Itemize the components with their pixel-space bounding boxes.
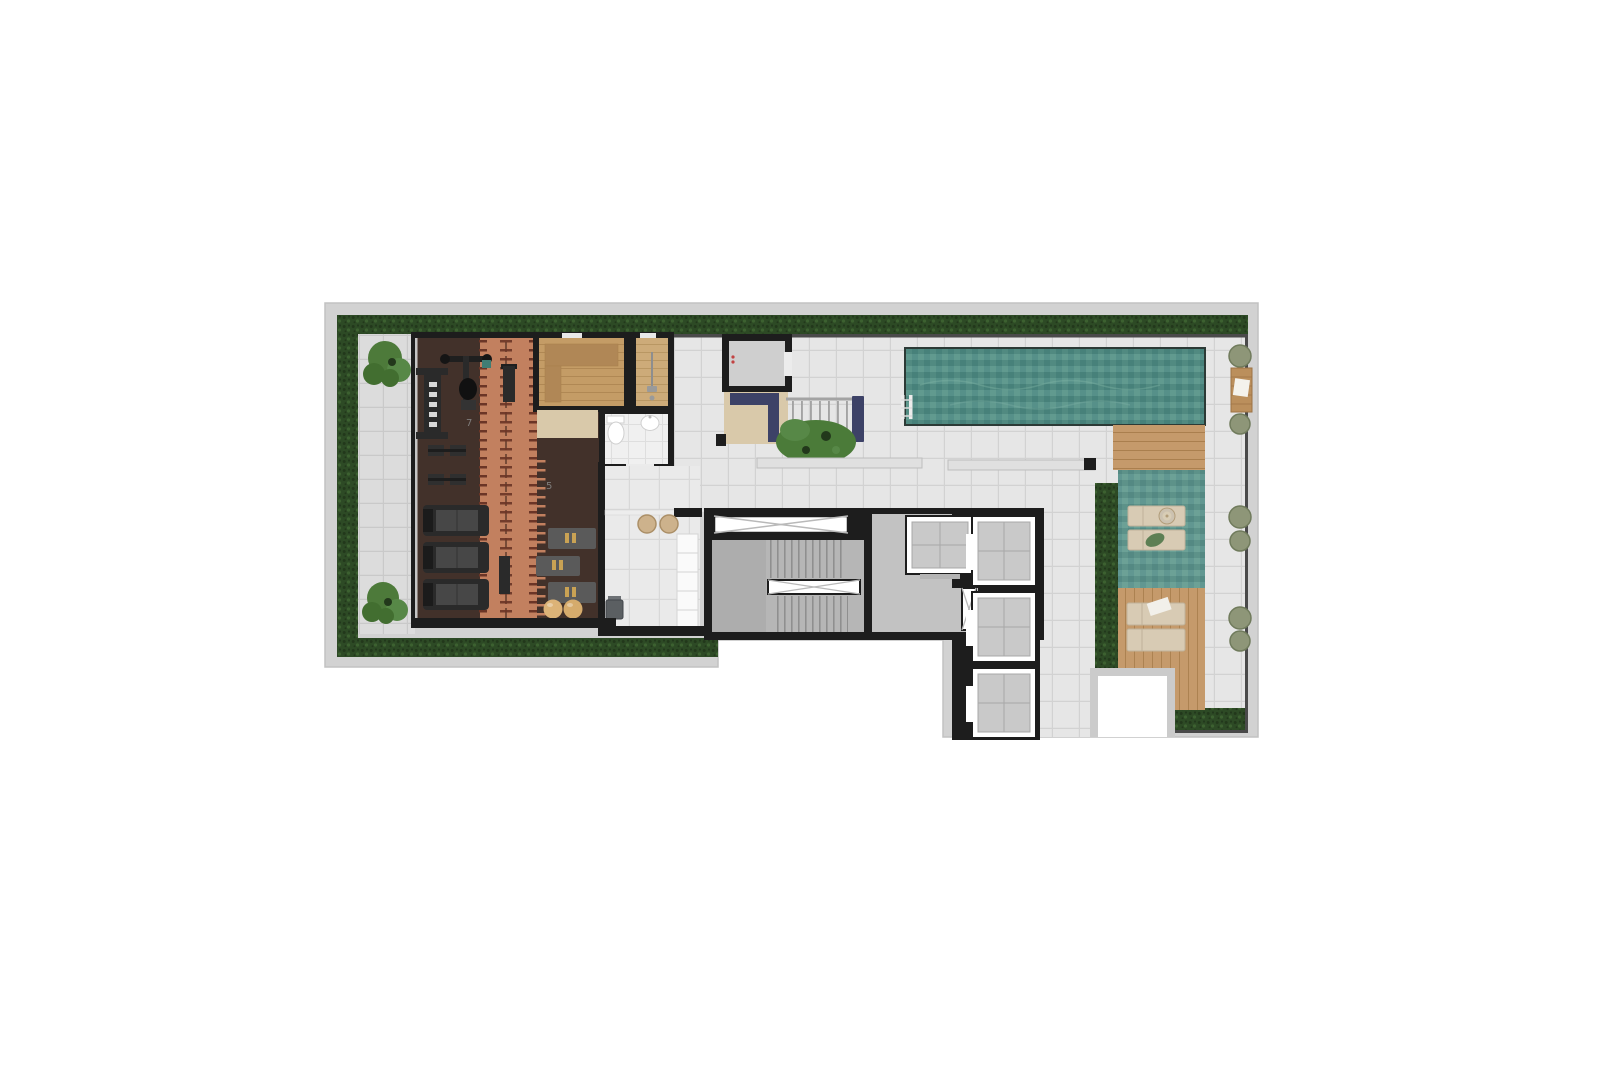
gym-south-wall [411,618,616,628]
bin [606,600,623,619]
elevator-door [966,686,973,722]
low-ledge [948,460,1095,470]
sink-icon [641,416,659,431]
sauna-bench [545,344,618,366]
shower-control [731,355,734,358]
hedge-left [337,315,358,657]
toilet-icon [607,416,624,444]
pantry-west-wall [598,462,605,628]
deck-loungers [1127,597,1185,651]
wall-column [1084,458,1096,470]
round-planter [1229,345,1251,367]
stool [660,515,678,533]
exercise-mat [536,556,580,576]
track-marker-7: 7 [466,418,472,429]
pantry-south-wall [598,626,712,636]
elevator-door [920,574,960,579]
shower-room-door [784,352,792,376]
hedge-bottom-right [1170,708,1248,732]
track-marker-5: 5 [546,481,552,492]
cable-post [499,556,510,594]
shaft-hatch [714,516,848,533]
treadmills [423,505,489,610]
shower-room-floor [729,341,785,386]
exercise-ball [564,600,583,619]
pool-shower-room [722,334,792,392]
hedge-bottom-left [337,638,718,657]
bathroom [599,408,674,470]
lap-pool-zone [901,348,1205,425]
stair-flight-down [776,596,848,632]
elevator-3 [966,668,1036,738]
gym-vestibule [537,410,598,438]
east-corridor-tiles [1040,470,1095,737]
low-ledge [757,458,922,468]
stair-landing-hatch [768,580,860,594]
exercise-ball [544,600,563,619]
sun-lounger [1127,629,1185,651]
shower-door [640,333,656,338]
stool [638,515,656,533]
treadmill-3 [423,579,489,610]
sauna-block [533,332,674,412]
elevator-door [966,534,973,570]
treadmill-2 [423,542,489,573]
wall-column [716,434,726,446]
round-planter [1230,631,1250,651]
counter [677,534,698,630]
round-planter [1229,607,1251,629]
stair-flight-up [766,540,846,578]
round-planter [1230,531,1250,551]
gym-glazing [415,338,418,620]
elevator-1 [966,516,1036,586]
sauna-door [562,333,582,338]
stair-hall [712,540,864,632]
floor-plan: 7 5 [0,0,1600,1080]
hedge-top [337,315,1248,334]
wood-bench [1231,368,1252,412]
treadmill-1 [423,505,489,536]
towel [1233,378,1250,397]
round-planter [1230,414,1250,434]
roof-void [1090,668,1175,737]
round-planter [1229,506,1251,528]
shower-control [731,360,734,363]
glass-partition [605,510,677,515]
lap-pool [905,348,1205,425]
sun-lounger [1128,506,1185,526]
partition-wall [674,508,702,517]
wood-strip [1113,425,1205,470]
elevator-service [906,516,974,579]
elevator-door [966,610,973,646]
floor-plan-canvas: 7 5 [0,0,1600,1080]
sauna-bench [545,366,561,402]
navy-bench [768,393,779,442]
top-parapet-wall [622,334,1248,338]
pantry [598,462,702,630]
elevator-2 [966,592,1036,662]
